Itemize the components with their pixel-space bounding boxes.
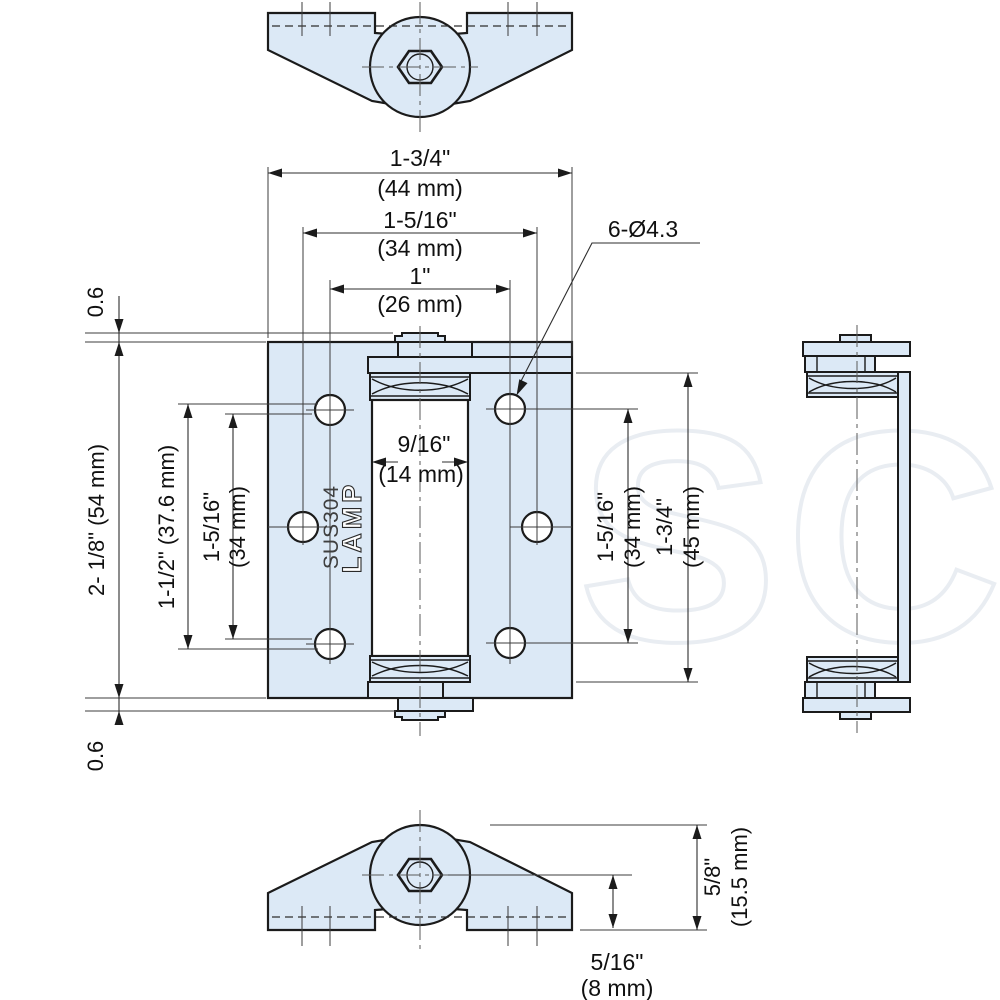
dim-edge-offset-top: 0.6 — [83, 287, 108, 318]
dim-pin-offset-in: 5/16" — [591, 949, 644, 975]
dim-hole-span-inner-mm: (26 mm) — [377, 291, 463, 317]
dim-hole-span-outer-mm: (34 mm) — [377, 235, 463, 261]
side-bottom-tab — [840, 712, 871, 719]
dim-hole-span-inner-in: 1" — [410, 263, 431, 289]
top-view — [268, 2, 572, 133]
hinge-drawing-page: MSC — [0, 0, 1000, 1000]
dim-depth-in: 5/8" — [700, 858, 725, 896]
dim-right-span-in: 1-5/16" — [593, 492, 618, 562]
upper-arm-bar — [368, 357, 572, 373]
lower-arm-bar — [398, 698, 473, 711]
dim-knuckle-height-mm: (45 mm) — [679, 486, 704, 568]
dim-leaf-height: 2- 1/8" (54 mm) — [84, 444, 109, 596]
dim-hole-pitch-left: 1-1/2" (37.6 mm) — [154, 445, 179, 609]
material-marking: SUS304 — [320, 485, 343, 569]
lower-knuckle-block — [368, 682, 443, 698]
dim-leaf-width-in: 1-3/4" — [390, 145, 451, 171]
side-top-tab — [840, 335, 871, 342]
dim-leaf-width-mm: (44 mm) — [377, 175, 463, 201]
dim-right-span-mm: (34 mm) — [620, 486, 645, 568]
dim-pin-offset-mm: (8 mm) — [581, 975, 654, 1000]
dim-edge-offset-bottom: 0.6 — [83, 741, 108, 772]
dim-knuckle-height-in: 1-3/4" — [652, 498, 677, 556]
upper-knuckle-block — [398, 342, 472, 357]
dim-left-span-in: 1-5/16" — [199, 492, 224, 562]
bottom-view — [268, 810, 572, 952]
front-view: LAMP SUS304 — [268, 326, 572, 736]
dim-barrel-dia-in: 9/16" — [398, 431, 451, 457]
dim-barrel-dia-mm: (14 mm) — [378, 461, 464, 487]
hinge-engineering-drawing: MSC — [0, 0, 1000, 1000]
dim-hole-callout: 6-Ø4.3 — [608, 216, 678, 242]
dim-hole-span-outer-in: 1-5/16" — [383, 207, 456, 233]
side-leaf-edge — [898, 372, 910, 682]
dim-left-span-mm: (34 mm) — [225, 486, 250, 568]
dim-depth-mm: (15.5 mm) — [727, 827, 752, 927]
